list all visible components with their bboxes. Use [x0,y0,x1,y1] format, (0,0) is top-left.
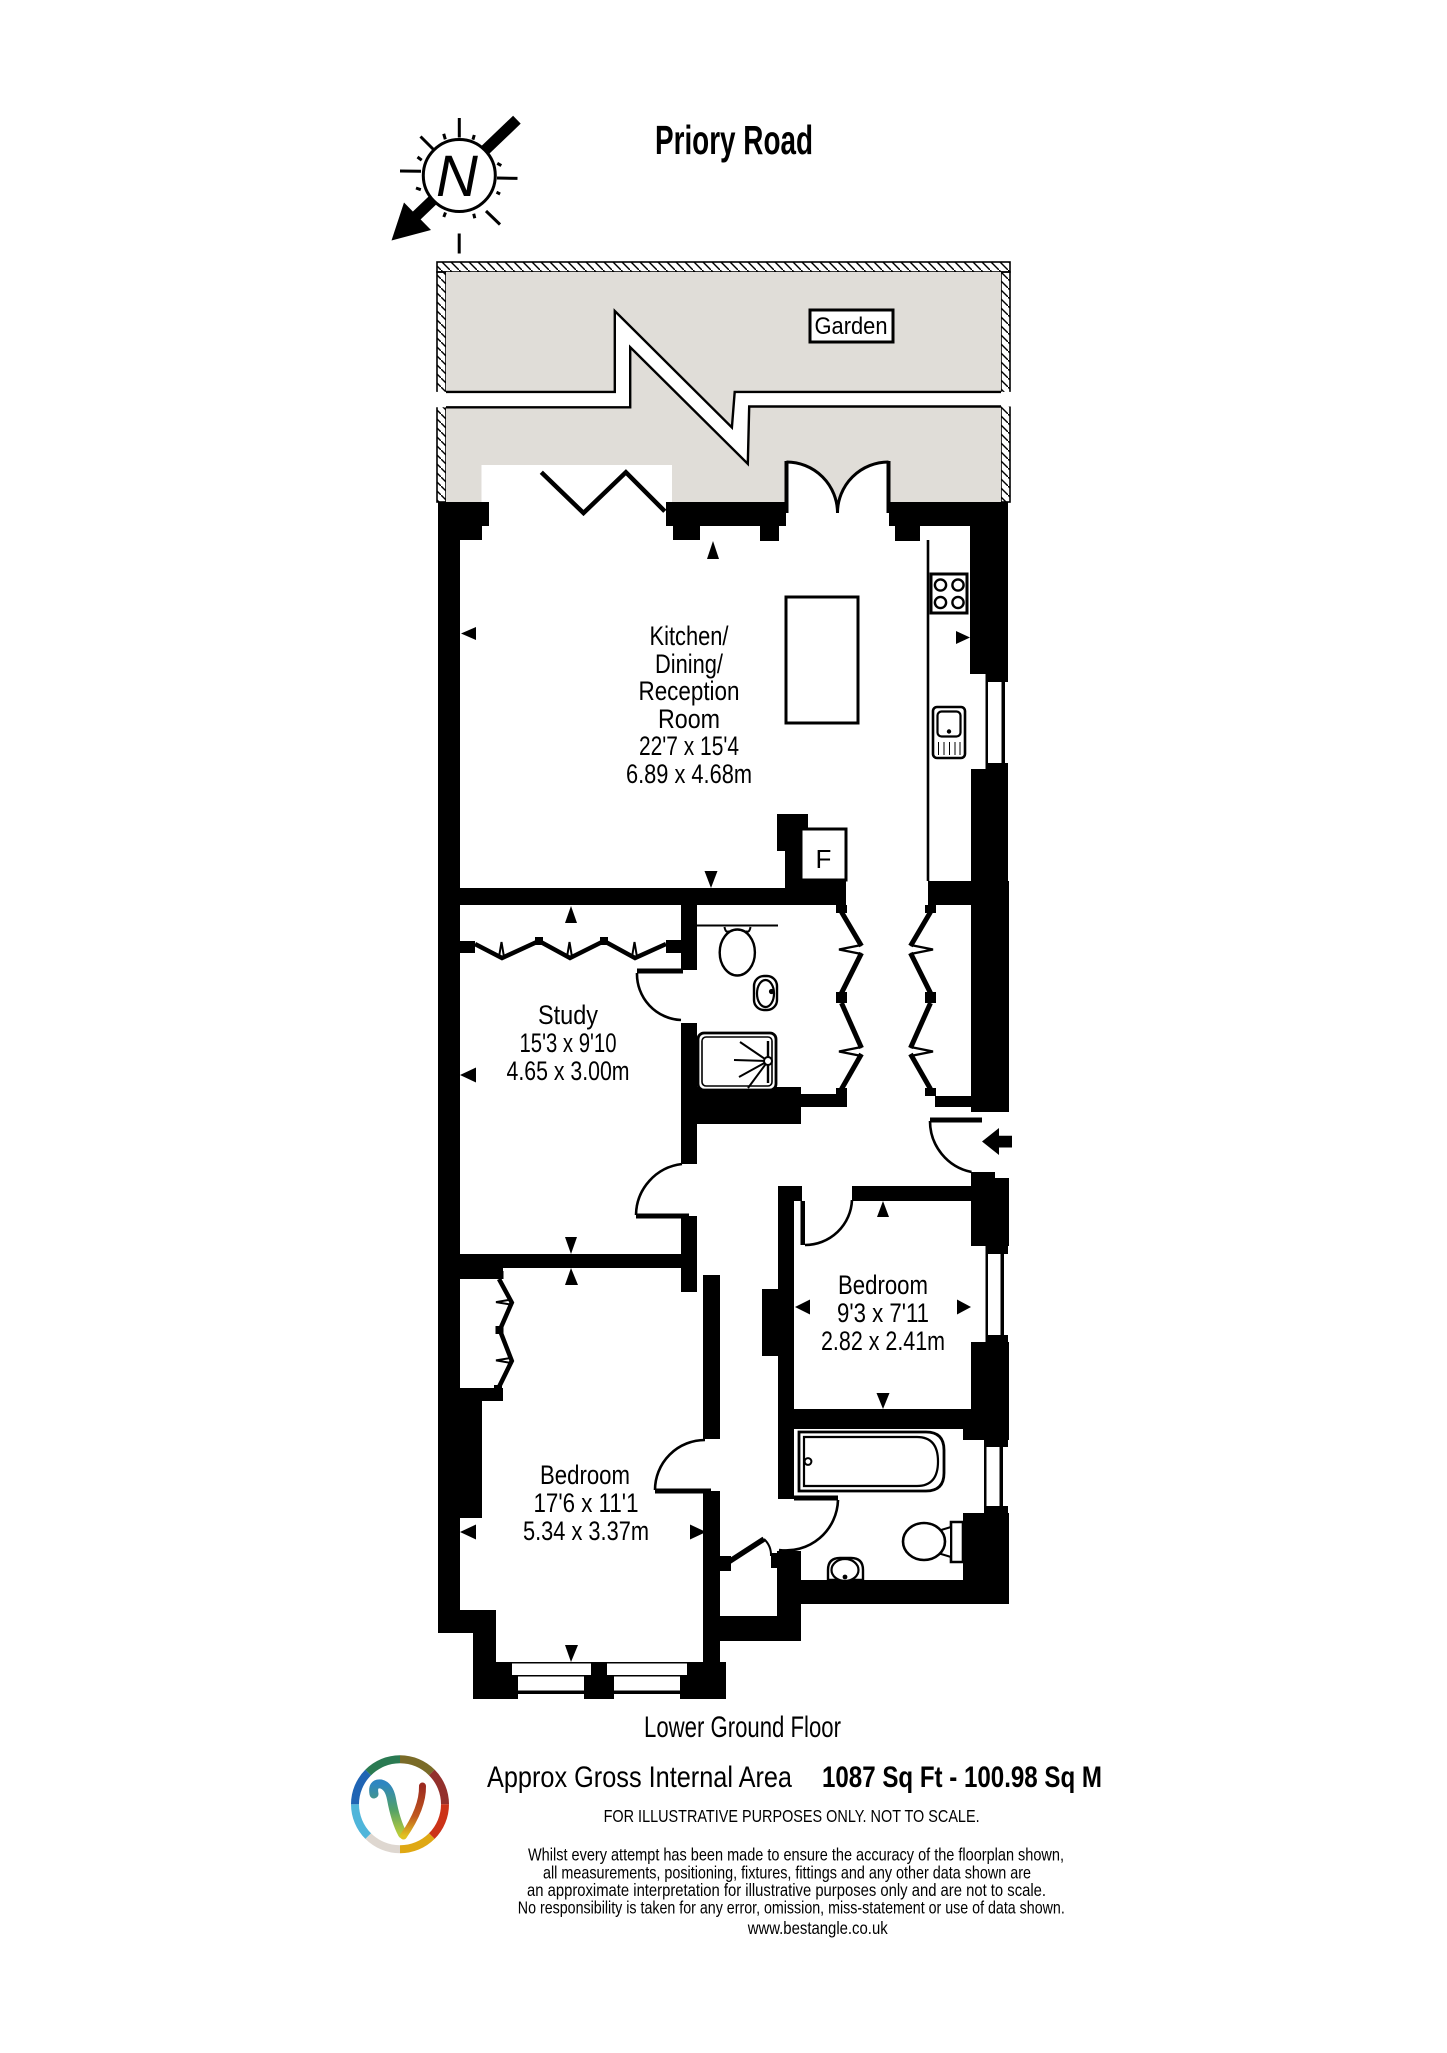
svg-text:22'7 x 15'4: 22'7 x 15'4 [639,731,739,761]
svg-text:Whilst every attempt has been: Whilst every attempt has been made to en… [528,1845,1064,1865]
svg-text:Priory Road: Priory Road [655,117,813,163]
svg-text:N: N [436,144,478,209]
svg-text:15'3 x 9'10: 15'3 x 9'10 [520,1028,617,1058]
svg-text:Garden: Garden [815,313,888,340]
svg-text:No responsibility is taken for: No responsibility is taken for any error… [518,1898,1065,1918]
svg-text:17'6 x 11'1: 17'6 x 11'1 [534,1488,639,1518]
svg-text:2.82 x 2.41m: 2.82 x 2.41m [821,1326,945,1356]
svg-text:FOR ILLUSTRATIVE PURPOSES ONLY: FOR ILLUSTRATIVE PURPOSES ONLY. NOT TO S… [604,1806,980,1826]
svg-text:Dining/: Dining/ [655,649,723,679]
svg-text:Reception: Reception [639,676,740,706]
svg-text:Room: Room [658,704,720,734]
svg-text:1087 Sq Ft - 100.98 Sq M: 1087 Sq Ft - 100.98 Sq M [822,1761,1102,1794]
svg-text:5.34 x 3.37m: 5.34 x 3.37m [523,1516,649,1546]
svg-text:Bedroom: Bedroom [540,1460,630,1490]
svg-text:9'3 x 7'11: 9'3 x 7'11 [837,1298,929,1328]
svg-text:Bedroom: Bedroom [838,1270,928,1300]
svg-text:F: F [816,844,832,874]
svg-text:Study: Study [538,1000,598,1030]
svg-text:www.bestangle.co.uk: www.bestangle.co.uk [747,1918,888,1938]
svg-text:6.89 x 4.68m: 6.89 x 4.68m [626,759,752,789]
svg-text:Lower Ground Floor: Lower Ground Floor [644,1711,841,1744]
svg-text:Kitchen/: Kitchen/ [650,621,729,651]
svg-text:4.65 x 3.00m: 4.65 x 3.00m [507,1056,630,1086]
svg-text:Approx Gross Internal Area: Approx Gross Internal Area [487,1761,792,1794]
